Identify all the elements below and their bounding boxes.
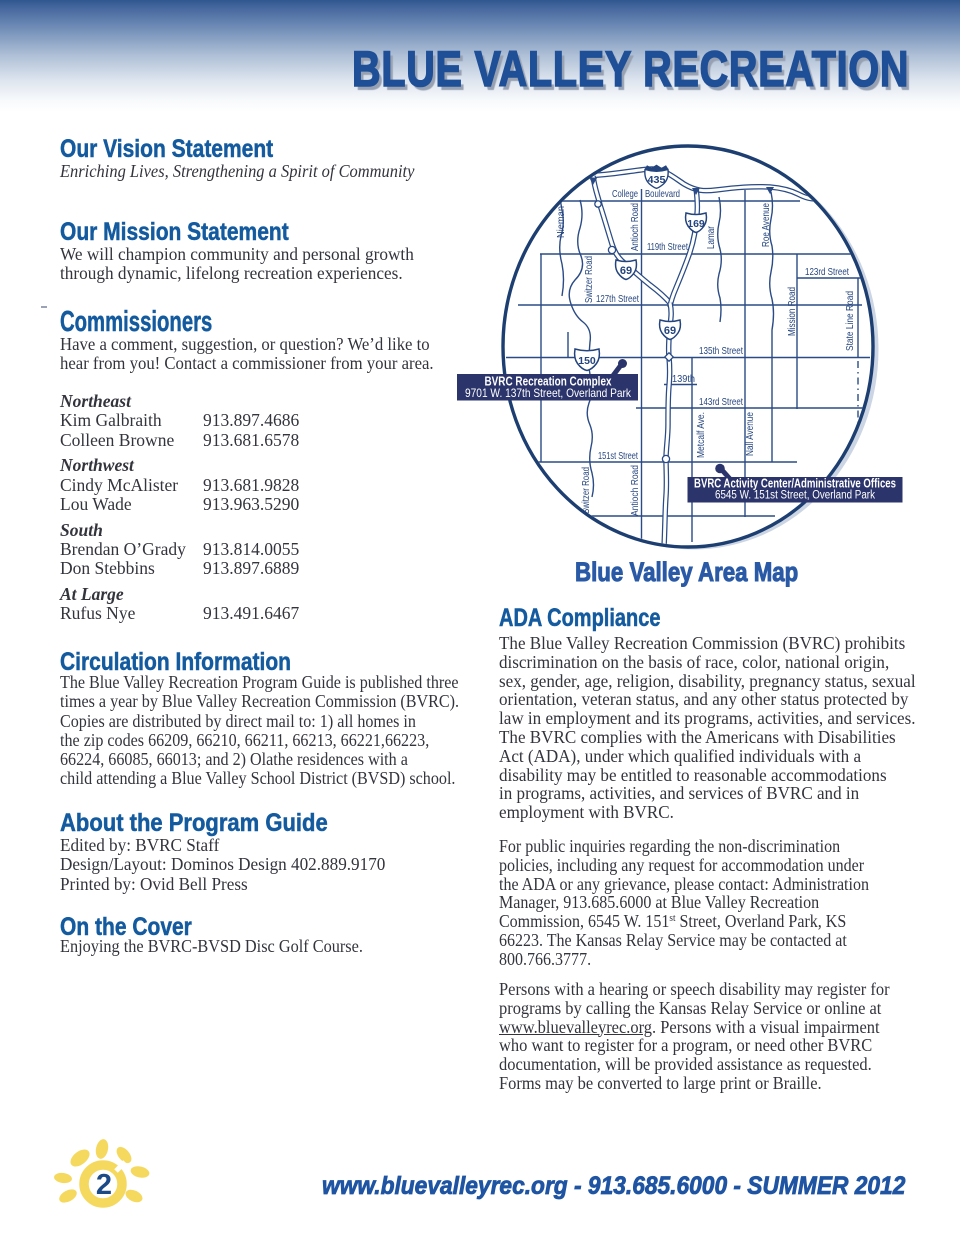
svg-text:139th: 139th [672, 373, 695, 385]
svg-text:Lamar: Lamar [705, 226, 717, 249]
svg-text:435: 435 [648, 174, 666, 186]
svg-text:Switzer Road: Switzer Road [580, 467, 592, 514]
svg-text:127th Street: 127th Street [596, 293, 639, 305]
svg-text:151st Street: 151st Street [598, 450, 638, 462]
svg-text:69: 69 [620, 265, 632, 277]
svg-text:Nall Avenue: Nall Avenue [744, 412, 756, 456]
svg-text:Boulevard: Boulevard [645, 188, 680, 200]
svg-text:Antioch Road: Antioch Road [629, 465, 641, 516]
svg-text:119th Street: 119th Street [647, 241, 688, 253]
svg-text:Mission Road: Mission Road [786, 287, 798, 336]
svg-text:Nieman: Nieman [555, 206, 567, 238]
svg-text:9701 W. 137th Street, Overland: 9701 W. 137th Street, Overland Park [465, 386, 631, 400]
svg-text:143rd Street: 143rd Street [699, 396, 743, 408]
svg-text:Roe Avenue: Roe Avenue [760, 203, 772, 247]
svg-text:123rd Street: 123rd Street [805, 266, 849, 278]
svg-text:6545 W. 151st Street, Overland: 6545 W. 151st Street, Overland Park [715, 490, 875, 502]
svg-text:State Line Road: State Line Road [844, 291, 856, 351]
svg-text:Antioch Road: Antioch Road [629, 203, 641, 251]
svg-text:69: 69 [664, 325, 676, 337]
svg-text:135th Street: 135th Street [699, 345, 743, 357]
svg-text:Switzer Road: Switzer Road [583, 256, 595, 303]
svg-text:BVRC Activity Center/Administr: BVRC Activity Center/Administrative Offi… [694, 477, 896, 491]
svg-text:169: 169 [687, 218, 705, 230]
svg-text:150: 150 [578, 355, 596, 367]
svg-text:2: 2 [96, 1169, 112, 1201]
svg-text:College: College [612, 188, 638, 200]
svg-text:Metcalf Ave.: Metcalf Ave. [695, 412, 707, 458]
